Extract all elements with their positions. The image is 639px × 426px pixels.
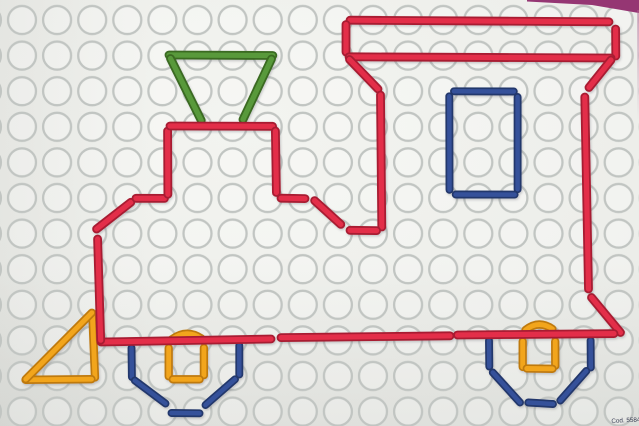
svg-text:Cod. 55842: Cod. 55842 bbox=[611, 416, 639, 425]
